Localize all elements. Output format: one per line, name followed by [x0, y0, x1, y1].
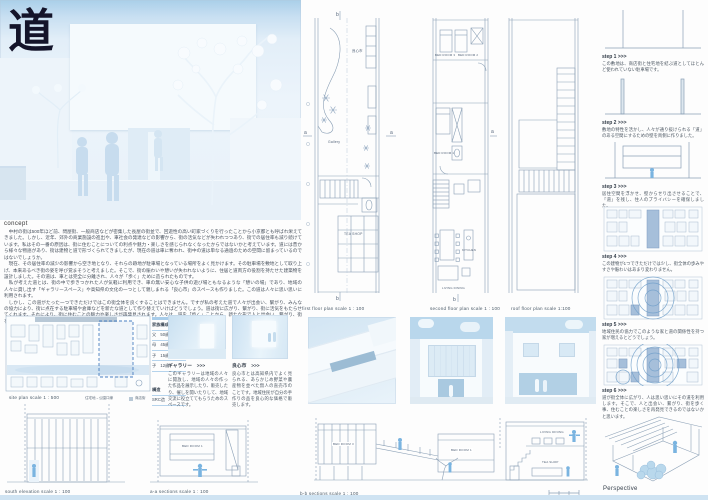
ryoshinichi-text: 良心市とは高知県内でよく見られる、あらかじめ野菜や農産物を並べた無人の直売市のこ… [232, 371, 292, 408]
room-label-gallery: Gallery [328, 140, 340, 144]
concept-block: concept 中村の街は500年ほど前、問屋街、一般商店などが密集した長屋の街… [4, 221, 302, 325]
perspective-drawing [603, 415, 704, 484]
side-wall [589, 331, 596, 397]
cloud [460, 322, 480, 332]
step4-text: この建物が1つできただけでは少し、街全体の歩みやすさや賑わいはあまり変わりません… [602, 261, 704, 273]
second-floor-plan-caption: second floor plan scale 1 : 100 [430, 306, 500, 311]
step4-map-diagram [603, 206, 703, 252]
step5-text: 地域住民の協力でこのような家と道の関係性を持つ家が増えるとどうでしょう。 [602, 329, 704, 341]
model-photo-aerial [308, 317, 396, 404]
model-photo-facade [505, 317, 596, 404]
south-elevation-caption: south elevation scale 1 : 100 [5, 489, 70, 494]
bb-room-label-bed3: BED ROOM 3 [332, 442, 355, 446]
aa-room-label-bed1: BED ROOM 1 [182, 444, 203, 448]
ryoshinichi-photo [232, 315, 288, 359]
aa-section: BED ROOM 1 a-a sections scale 1 : 100 [148, 420, 262, 496]
step5-map-diagram [603, 276, 703, 320]
south-elevation: south elevation scale 1 : 100 [5, 404, 129, 496]
section-mark-a-right2: a [491, 129, 494, 135]
gallery-text: このギャラリーは地域の人々に開放し、地域の人々の作った作品を展示したり、販売した… [168, 371, 228, 408]
people-figures-icon [60, 120, 180, 215]
step5-label: step 5 >>> [602, 322, 627, 328]
room-label-kitchen: KITCHEN [462, 248, 476, 252]
step6-map-diagram [603, 344, 703, 386]
gallery-photo [168, 315, 226, 359]
roof-floor-plan: roof floor plan scale 1:100 [505, 8, 585, 308]
model-photo-front [410, 317, 493, 404]
gallery-block: ギャラリー >>> このギャラリーは地域の人々に開放し、地域の人々の作った作品を… [168, 315, 228, 408]
room-label-bed3: BED ROOM 3 [435, 53, 455, 57]
section-mark-b-top: b [336, 12, 339, 18]
step2-label: step 2 >>> [602, 120, 627, 126]
ryoshinichi-caption: 良心市 >>> [232, 362, 292, 369]
window-grid [428, 345, 476, 377]
room-label-ryoshin: 良心市 [352, 48, 363, 53]
bb-room-label-bed1: BED ROOM 1 [450, 448, 473, 452]
section-mark-b-bottom2: b [453, 297, 456, 303]
concept-paragraph: 中村の街は500年ほど前、問屋街、一般商店などが密集した長屋の街並で、回遊性の高… [4, 229, 302, 325]
step6-label: step 6 >>> [602, 388, 627, 394]
step2-diagram [603, 76, 703, 118]
aa-section-caption: a-a sections scale 1 : 100 [150, 489, 209, 494]
room-label-living: LIVING DINING [442, 286, 465, 290]
site-plan-caption: site plan scale 1 : 500 [9, 395, 59, 400]
room-label-teashop: TEA SHOP [344, 232, 363, 236]
ground [410, 397, 493, 404]
first-floor-plan-drawing: b b a a [300, 8, 400, 304]
presentation-board: 道 concept 中村の街は500年ほど前、問屋街、一般商店などが密集した長屋… [0, 0, 708, 500]
side-wall [505, 331, 513, 397]
site-plan: site plan scale 1 : 500 住宅地→公園口線 商店街 [5, 315, 153, 399]
shop-street-chip [129, 397, 133, 401]
perspective-caption: Perspective [603, 486, 638, 492]
first-floor-plan: b b a a 良心市 Gallery TEA SHOP first floor… [300, 8, 400, 308]
step1-diagram [603, 8, 703, 52]
step4-label: step 4 >>> [602, 254, 627, 260]
roof-floor-plan-drawing [505, 8, 583, 304]
model-steps [0, 166, 26, 200]
cloud [418, 319, 434, 328]
roof-floor-plan-caption: roof floor plan scale 1:100 [511, 306, 571, 311]
person-icon [535, 379, 539, 392]
concept-heading: concept [4, 221, 302, 227]
second-floor-plan: a b BED ROOM 3 BED ROOM 2 BED ROOM 1 KIT… [428, 8, 503, 308]
step3-diagram [603, 142, 703, 182]
person-icon [268, 333, 271, 342]
gallery-floor [168, 349, 226, 359]
step3-label: step 3 >>> [602, 184, 627, 190]
footer-strip [0, 495, 708, 500]
first-floor-plan-caption: first floor plan scale 1 : 100 [302, 306, 364, 311]
gallery-doorway [200, 324, 214, 348]
person-icon [273, 332, 276, 342]
side-wall [482, 339, 493, 399]
step1-text: この敷地は、商店街と住宅地を結ぶ道としてほとんど使われていない駐車場です。 [602, 61, 704, 73]
section-mark-a-right: a [390, 130, 393, 136]
window [523, 343, 539, 357]
room-label-bed2: BED ROOM 2 [458, 53, 478, 57]
hero-model-photo: 道 [0, 0, 301, 219]
bb-section-drawing [310, 418, 592, 488]
south-elevation-drawing [5, 404, 127, 486]
site-legend-road: 住宅地→公園口線 [85, 396, 113, 401]
ground-opening [519, 373, 577, 395]
window [559, 343, 575, 357]
page-title: 道 [8, 8, 54, 54]
cloud [565, 320, 583, 329]
aa-section-drawing [148, 420, 260, 486]
room-label-bed1: BED ROOM 1 [434, 151, 454, 155]
section-mark-a-left: a [304, 130, 307, 136]
section-mark-b-bottom: b [336, 296, 339, 302]
side-wall [410, 339, 420, 399]
bb-room-label-living: LIVING DINING [540, 430, 564, 434]
step1-label: step 1 >>> [602, 54, 627, 60]
ryoshinichi-block: 良心市 >>> 良心市とは高知県内でよく見られる、あらかじめ野菜や農産物を並べた… [232, 315, 292, 408]
ground [505, 397, 596, 404]
person-icon [543, 380, 547, 392]
person-icon [449, 385, 453, 397]
bb-section: BED ROOM 3 BED ROOM 1 LIVING DINING TEA … [310, 418, 594, 498]
gallery-caption: ギャラリー >>> [168, 362, 228, 369]
step2-text: 敷地の特性を活かし、人々が通り抜けられる「道」のある空間にするための壁を両側に作… [602, 127, 704, 139]
site-plan-drawing [5, 315, 151, 393]
bb-room-label-tea: TEA SHOP [542, 460, 559, 464]
site-legend-shop: 商店街 [135, 396, 146, 401]
